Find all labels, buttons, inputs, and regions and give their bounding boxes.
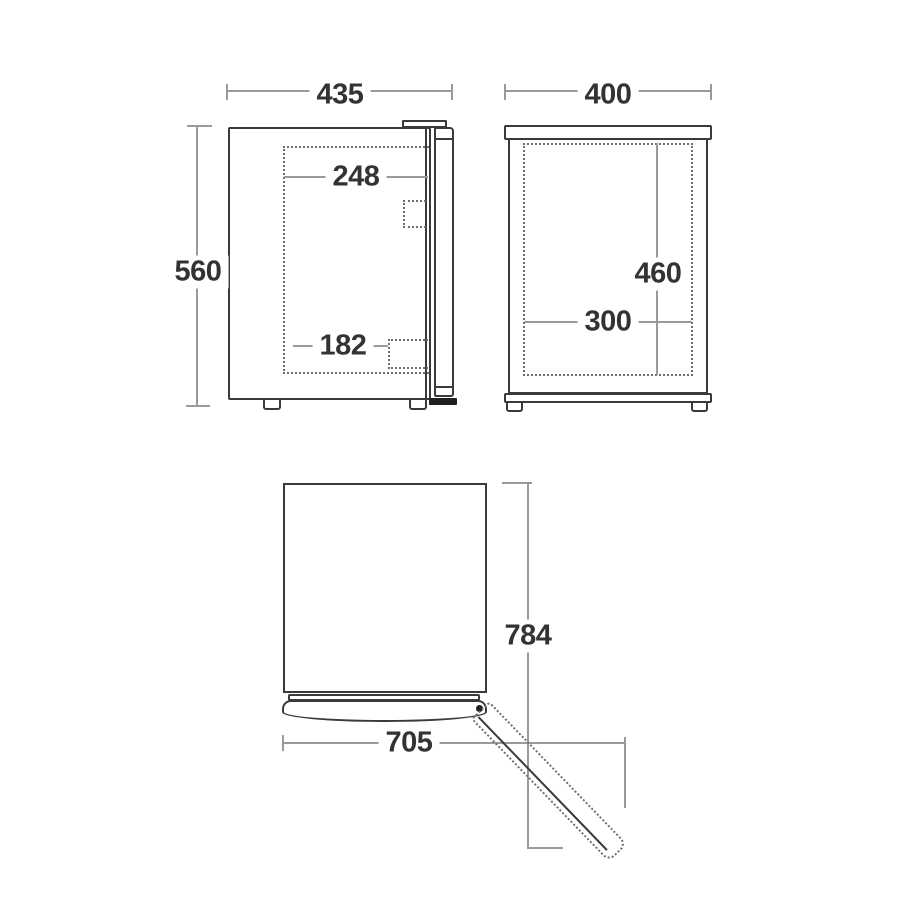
front-width-dim-tick-left — [226, 84, 228, 100]
front-width-dim-tick-right — [451, 84, 453, 100]
side-depth-dim-tick-left — [504, 84, 506, 100]
front-upper-hinge-dashed-box — [403, 200, 426, 228]
front-height-dim-tick-top — [187, 125, 212, 127]
top-door-open-face-line — [478, 716, 608, 850]
top-body-outline — [283, 483, 487, 693]
top-door-open-dashed — [471, 701, 628, 862]
front-width-label: 435 — [310, 79, 371, 112]
side-depth-dim-tick-right — [710, 84, 712, 100]
top-door-closed — [282, 700, 487, 722]
front-hinge-strip-bottom-line — [435, 386, 453, 388]
top-door-open-depth-label: 784 — [498, 620, 559, 653]
top-width-extension-line — [624, 737, 626, 808]
appliance-dimension-drawing: 435 560 248 182 400 460 300 — [0, 0, 900, 900]
front-door-hinge-strip — [434, 127, 454, 397]
front-inner-width-label: 248 — [326, 161, 387, 194]
side-base-plate — [504, 393, 712, 403]
side-inner-height-label: 460 — [628, 258, 689, 291]
side-top-lid — [504, 125, 712, 140]
front-height-dim-tick-bottom — [186, 405, 210, 407]
top-door-open-dim-tick-bottom — [527, 847, 563, 849]
top-width-dim-line — [283, 742, 625, 744]
front-height-label: 560 — [168, 256, 229, 289]
front-hinge-strip-top-line — [435, 138, 453, 140]
top-door-open-dim-line — [527, 483, 529, 849]
front-inner-offset-label: 182 — [313, 330, 374, 363]
side-inner-depth-label: 300 — [578, 306, 639, 339]
side-depth-label: 400 — [578, 79, 639, 112]
top-width-label: 705 — [379, 727, 440, 760]
front-lower-hinge-dashed-box — [388, 339, 428, 369]
top-door-open-dim-tick-top — [502, 482, 532, 484]
front-bottom-hinge-bracket — [429, 398, 457, 405]
top-width-dim-tick-left — [282, 735, 284, 751]
